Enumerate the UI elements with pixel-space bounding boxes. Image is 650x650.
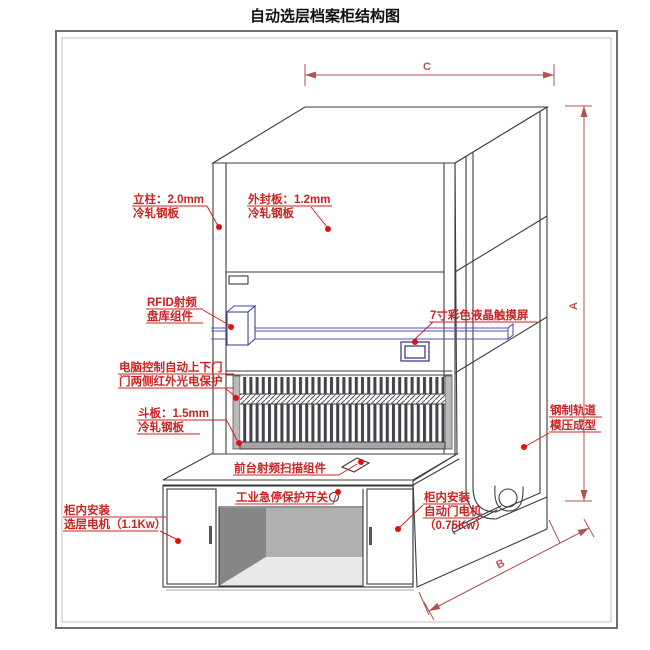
- dot-touchscreen: [412, 339, 418, 345]
- label-steel-track-1: 钢制轨道: [550, 403, 596, 417]
- label-rfid-2: 盘库组件: [147, 309, 193, 323]
- label-auto-door-2: 门两侧红外光电保护: [119, 374, 223, 388]
- dim-label-A: A: [568, 302, 580, 310]
- label-estop: 工业急停保护开关: [236, 490, 328, 504]
- label-hopper-2: 冷轧钢板: [138, 420, 184, 434]
- dim-label-B: B: [494, 557, 507, 571]
- shutter-bottom-bar: [240, 442, 445, 449]
- dot-rfid: [228, 324, 234, 330]
- label-outer-panel-2: 冷轧钢板: [248, 206, 294, 220]
- desk-right-door-handle: [369, 527, 372, 545]
- shutter-hatch-band: [240, 394, 445, 404]
- dot-outer-panel: [325, 226, 331, 232]
- knee-hole: [219, 507, 363, 586]
- label-column-2: 冷轧钢板: [133, 206, 179, 220]
- dot-estop: [335, 489, 341, 495]
- touchscreen-inner: [405, 346, 425, 358]
- dot-scanner: [358, 459, 364, 465]
- label-door-motor-1: 柜内安装: [423, 490, 470, 504]
- rfid-box-side: [248, 306, 255, 345]
- diagram-page: 自动选层档案柜结构图: [0, 0, 650, 650]
- label-hopper-1: 斗板：1.5mm: [138, 406, 209, 420]
- structure-diagram-svg: 自动选层档案柜结构图: [0, 0, 650, 650]
- desk-left-door-handle: [209, 526, 212, 544]
- dimension-width-C: C: [305, 61, 554, 86]
- dot-hopper: [236, 440, 242, 446]
- label-outer-panel-1: 外封板：1.2mm: [247, 192, 330, 206]
- label-door-motor-2: 自动门电机: [424, 504, 482, 518]
- dim-label-C: C: [423, 61, 431, 73]
- dot-layer-motor: [175, 538, 181, 544]
- interior-back-wall: [266, 508, 363, 557]
- label-layer-motor-2: 选层电机（1.1Kw）: [64, 517, 166, 531]
- shutter-guide-right: [445, 376, 452, 449]
- page-title: 自动选层档案柜结构图: [250, 7, 400, 25]
- label-layer-motor-1: 柜内安装: [63, 503, 110, 517]
- label-door-motor-3: （0.75Kw）: [424, 518, 487, 532]
- shutter-slats: [240, 377, 445, 442]
- label-touchscreen: 7寸彩色液晶触摸屏: [430, 308, 529, 322]
- label-front-scanner: 前台射频扫描组件: [234, 461, 326, 475]
- dot-steel-track: [521, 444, 527, 450]
- label-rfid-1: RFID射频: [147, 295, 197, 309]
- label-column-1: 立柱：2.0mm: [133, 192, 204, 206]
- shutter-door: [233, 376, 452, 449]
- dot-door-motor: [395, 526, 401, 532]
- label-steel-track-2: 模压成型: [550, 418, 596, 432]
- dimension-height-A: A: [565, 106, 592, 501]
- dot-auto-door: [233, 395, 239, 401]
- dot-column: [216, 224, 222, 230]
- label-auto-door-1: 电脑控制自动上下门: [119, 360, 223, 374]
